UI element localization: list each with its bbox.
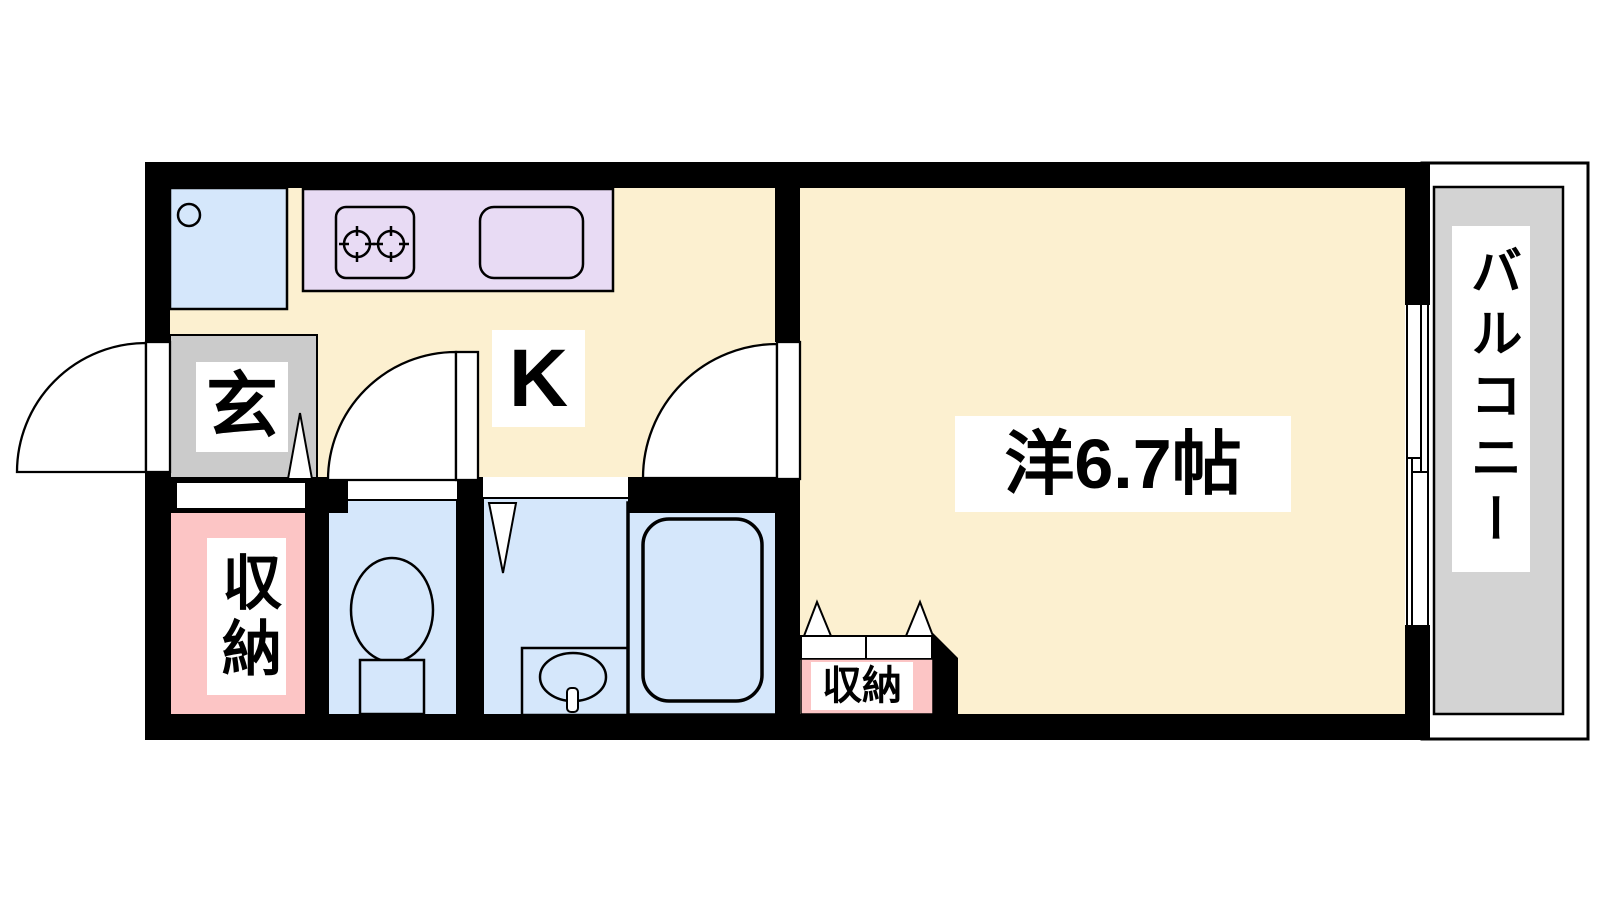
wall-toilet-bath <box>457 477 483 715</box>
bathtub-icon <box>628 503 777 715</box>
wall-divider-upper <box>775 188 800 342</box>
kitchen-sink-icon <box>480 207 583 278</box>
floorplan-canvas: K 玄 収納 洋6.7帖 収納 バルコニー <box>0 0 1600 900</box>
wall-storage-toilet <box>305 477 328 715</box>
window-icon <box>1405 305 1430 625</box>
wall-right-lower <box>1405 625 1430 714</box>
wall-left-upper <box>145 162 170 342</box>
storage-main-label: 収納 <box>811 662 913 710</box>
toilet-icon <box>351 558 433 714</box>
storage-left-label: 収納 <box>207 538 286 695</box>
wall-band-right <box>628 477 800 513</box>
entrance-label: 玄 <box>196 362 288 452</box>
entrance-door-icon <box>17 342 170 472</box>
wall-right-upper <box>1405 162 1430 305</box>
wall-divider-lower <box>775 478 800 715</box>
storage-left-door-icon <box>176 482 306 509</box>
kitchen-label: K <box>492 330 585 427</box>
wall-top <box>145 162 1430 188</box>
main-room-label: 洋6.7帖 <box>955 416 1291 512</box>
balcony-label: バルコニー <box>1452 226 1530 572</box>
washing-machine-icon <box>170 188 287 309</box>
wall-left-lower <box>145 472 170 714</box>
wall-bottom <box>145 714 1430 740</box>
kitchen-counter <box>303 189 613 291</box>
stove-icon <box>336 207 414 278</box>
washbasin-icon <box>522 648 628 715</box>
